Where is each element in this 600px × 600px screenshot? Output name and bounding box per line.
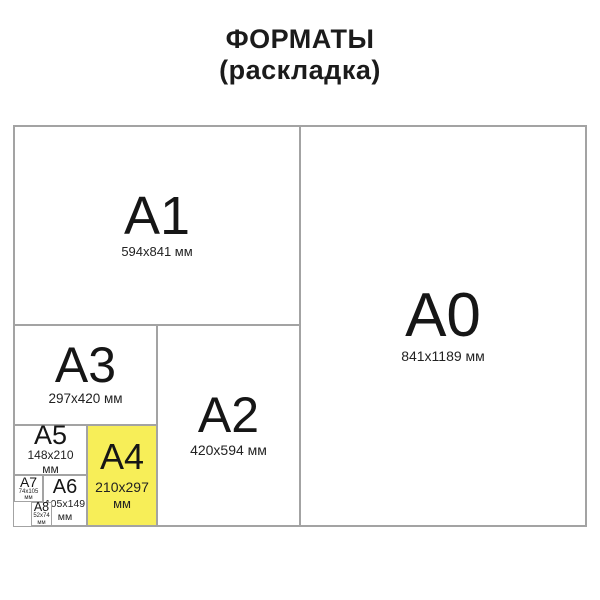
format-a4-size: 210x297 (95, 479, 149, 496)
format-a3-label: A3 (55, 342, 116, 390)
page-title-line1: ФОРМАТЫ (0, 24, 600, 55)
format-region-a3: A3 297x420 мм (14, 325, 157, 425)
format-a8-label: A8 (34, 502, 49, 513)
format-a6-label: A6 (53, 478, 77, 497)
format-a7-unit: мм (24, 495, 32, 501)
format-region-a0: A0 841x1189 мм (300, 126, 586, 526)
format-region-a1: A1 594x841 мм (14, 126, 300, 325)
format-a1-label: A1 (124, 191, 190, 242)
format-a5-label: A5 (34, 423, 67, 449)
format-region-a4-highlighted: A4 210x297 мм (87, 425, 157, 526)
format-a8-unit: мм (37, 520, 45, 526)
page-title: ФОРМАТЫ (раскладка) (0, 24, 600, 86)
paper-formats-infographic: ФОРМАТЫ (раскладка) A1 594x841 мм A0 841… (0, 0, 600, 600)
format-region-a7: A7 74x105 мм (14, 475, 43, 502)
format-a3-size: 297x420 мм (48, 391, 122, 408)
format-a6-unit: мм (58, 511, 72, 523)
format-a2-size: 420x594 мм (190, 442, 267, 460)
format-a5-size: 148x210 (27, 449, 73, 463)
format-a7-label: A7 (20, 476, 37, 489)
format-a4-unit: мм (113, 496, 131, 512)
format-region-a5: A5 148x210 мм (14, 425, 87, 475)
format-a0-label: A0 (405, 287, 481, 346)
format-a4-label: A4 (100, 440, 144, 474)
formats-diagram: A1 594x841 мм A0 841x1189 мм A3 297x420 … (13, 125, 587, 527)
format-a1-size: 594x841 мм (121, 244, 192, 260)
format-region-a8: A8 52x74 мм (31, 502, 52, 526)
page-title-line2: (раскладка) (0, 55, 600, 86)
format-region-a2: A2 420x594 мм (157, 325, 300, 526)
format-a0-size: 841x1189 мм (401, 348, 485, 366)
format-a2-label: A2 (198, 392, 259, 440)
